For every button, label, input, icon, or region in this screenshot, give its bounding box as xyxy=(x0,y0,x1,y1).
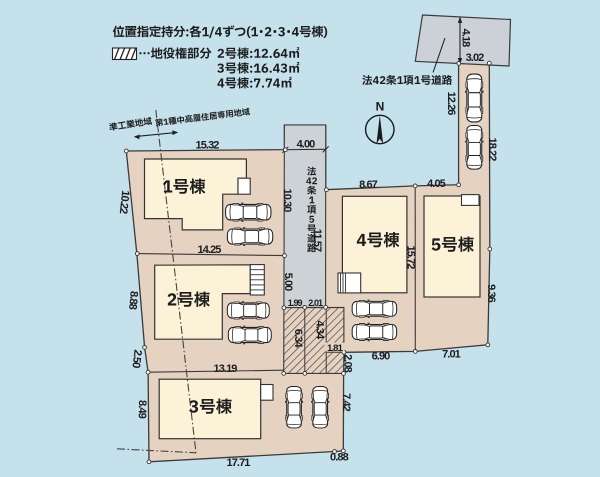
svg-text:N: N xyxy=(376,100,385,114)
svg-text:7.42: 7.42 xyxy=(340,393,352,412)
svg-text:2.08: 2.08 xyxy=(341,354,353,373)
svg-text:4.18: 4.18 xyxy=(460,29,472,48)
svg-text:14.25: 14.25 xyxy=(197,244,221,256)
svg-text:3.02: 3.02 xyxy=(466,52,485,64)
svg-text:12.26: 12.26 xyxy=(445,91,457,115)
svg-text:8.49: 8.49 xyxy=(136,400,148,419)
svg-text:0.88: 0.88 xyxy=(330,452,349,464)
svg-text:8.67: 8.67 xyxy=(359,179,378,191)
svg-text:8.88: 8.88 xyxy=(126,291,140,311)
svg-text:1.81: 1.81 xyxy=(327,343,344,354)
svg-text:13.19: 13.19 xyxy=(213,363,237,375)
svg-text:6.34: 6.34 xyxy=(292,329,304,349)
svg-text:18.22: 18.22 xyxy=(486,137,498,161)
svg-text:4.34: 4.34 xyxy=(313,320,325,340)
svg-text:5.00: 5.00 xyxy=(282,273,294,292)
svg-text:4.05: 4.05 xyxy=(427,178,446,190)
svg-text:15.32: 15.32 xyxy=(195,140,219,152)
svg-text:9.36: 9.36 xyxy=(485,284,497,303)
svg-text:17.71: 17.71 xyxy=(226,457,250,469)
svg-text:2.01: 2.01 xyxy=(308,298,323,308)
svg-text:7.01: 7.01 xyxy=(442,348,461,360)
svg-text:10.30: 10.30 xyxy=(281,188,293,212)
svg-text:4.00: 4.00 xyxy=(297,139,316,151)
svg-text:10.22: 10.22 xyxy=(117,190,131,215)
svg-text:6.90: 6.90 xyxy=(372,350,391,362)
svg-text:15.72: 15.72 xyxy=(405,245,417,269)
svg-text:1.99: 1.99 xyxy=(288,298,303,308)
svg-text:2.50: 2.50 xyxy=(129,349,143,369)
